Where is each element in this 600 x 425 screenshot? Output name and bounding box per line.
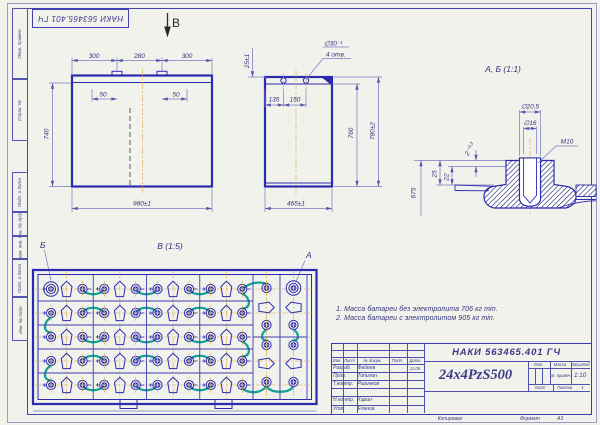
detail-title: А, Б (1:1) [484,64,521,74]
cell-connector [262,330,267,341]
detail-view: А, Б (1:1) ∅20,5 ∅16 М10 [411,64,597,216]
col-docum: № докум. [357,357,389,365]
plan-view: В (1:5) Б А [33,240,317,411]
side-view: ∅30⁻¹ 4 отв. 25±1 135 150 760 780±2 465±… [244,41,382,213]
divider [424,361,591,362]
dim-465: 465±1 [287,201,305,208]
row-role-0: Разраб. [333,364,356,372]
dim-740: 740 [44,128,51,139]
row-role-1: Пров. [333,372,356,380]
hole-callout-dia: ∅30⁻¹ [324,41,343,48]
engineering-drawing: Перв. примен. Справ. № Подп. и дата Инв.… [0,0,600,425]
dim-135: 135 [269,97,280,104]
dim-300-left: 300 [89,53,100,60]
row-name-2: Разинков [358,380,388,388]
mass-value: См. примеч. [550,368,571,384]
footer-format-label: Формат [520,416,540,422]
divider [553,384,554,392]
divider [332,364,424,365]
row-role-5: Утв. [333,405,356,413]
sheets-label: Листов [553,384,577,392]
dim-150: 150 [290,97,301,104]
divider [424,391,591,392]
row-name-0: Фадеев [358,364,388,372]
dim-d16: ∅16 [524,120,537,127]
arrow-down-icon [164,27,171,38]
dim-22: 22 [444,173,451,182]
dim-980: 980±1 [133,201,151,208]
divider [332,372,424,373]
plan-cells-layer [35,272,312,403]
dim-780: 780±2 [370,122,377,140]
front-view: 300 280 300 50 50 740 980±1 [44,53,213,212]
footer-kopiroval: Копировал [410,416,490,422]
dim-280: 280 [133,53,145,60]
note-line-2: 2. Масса батареи с электролитом 905 кг m… [336,314,498,323]
divider [332,380,424,381]
dim-760: 760 [348,127,355,138]
divider [357,344,358,413]
sheet-label: Лист [528,384,553,392]
row-role-4: Н.контр. [333,396,356,404]
cell-connector [294,330,299,341]
divider [343,344,344,413]
divider [332,350,424,351]
dim-d205: ∅20,5 [521,104,540,111]
divider [332,405,424,406]
divider [528,368,591,369]
divider [332,357,424,358]
dim-50-left: 50 [99,92,107,99]
divider [424,344,425,413]
dim-2: 2⁻⁰·² [463,141,477,158]
col-list: Лист [343,357,357,365]
rubber-mat-section [576,185,596,197]
dim-25-detail: 25 [432,170,439,179]
footer-format-value: А3 [557,416,563,422]
divider [407,344,408,413]
col-izm: Изм. [332,357,343,365]
row-date-0: 11.09 [407,364,424,372]
note-line-1: 1. Масса батареи без электролита 706 кг … [336,305,498,314]
scale-value: 1:10 [571,368,590,384]
dim-m10: М10 [561,139,574,146]
view-b-arrow: В [164,13,180,38]
divider [535,368,536,384]
row-role-3 [333,388,356,396]
col-podp: Подп. [389,357,407,365]
divider [528,361,529,392]
divider [332,396,424,397]
hole-callout-qty: 4 отв. [326,52,346,59]
row-name-5: Епанов [358,405,388,413]
dim-675: 675 [411,187,418,198]
divider [332,388,424,389]
terminal-b-label: Б [40,240,46,250]
dim-25: 25±1 [244,53,251,69]
dim-300-right: 300 [182,53,193,60]
row-name-3 [358,388,388,396]
divider [571,361,572,384]
row-name-4: Харин [358,396,388,404]
title-block-doc-number: НАКИ 563465.401 ГЧ [424,344,590,361]
terminal-a-label: А [305,250,312,260]
divider [542,368,543,384]
terminal-sleeve [520,158,541,206]
sheets-value: 1 [577,384,589,392]
row-role-2: Т.контр. [333,380,356,388]
title-block-part-name: 24x4PzS500 [424,361,528,392]
row-name-1: Топилин [358,372,388,380]
view-b-letter: В [172,16,180,30]
dim-50-right: 50 [172,92,180,99]
battery-front-outline [72,76,212,187]
divider [550,361,551,384]
divider [389,344,390,413]
col-data: Дата [407,357,424,365]
plan-title: В (1:5) [157,241,183,251]
title-block: НАКИ 563465.401 ГЧ 24x4PzS500 Изм. Лист … [331,343,593,415]
battery-side-outline [265,77,332,187]
notes: 1. Масса батареи без электролита 706 кг … [336,305,498,323]
divider [528,384,591,385]
